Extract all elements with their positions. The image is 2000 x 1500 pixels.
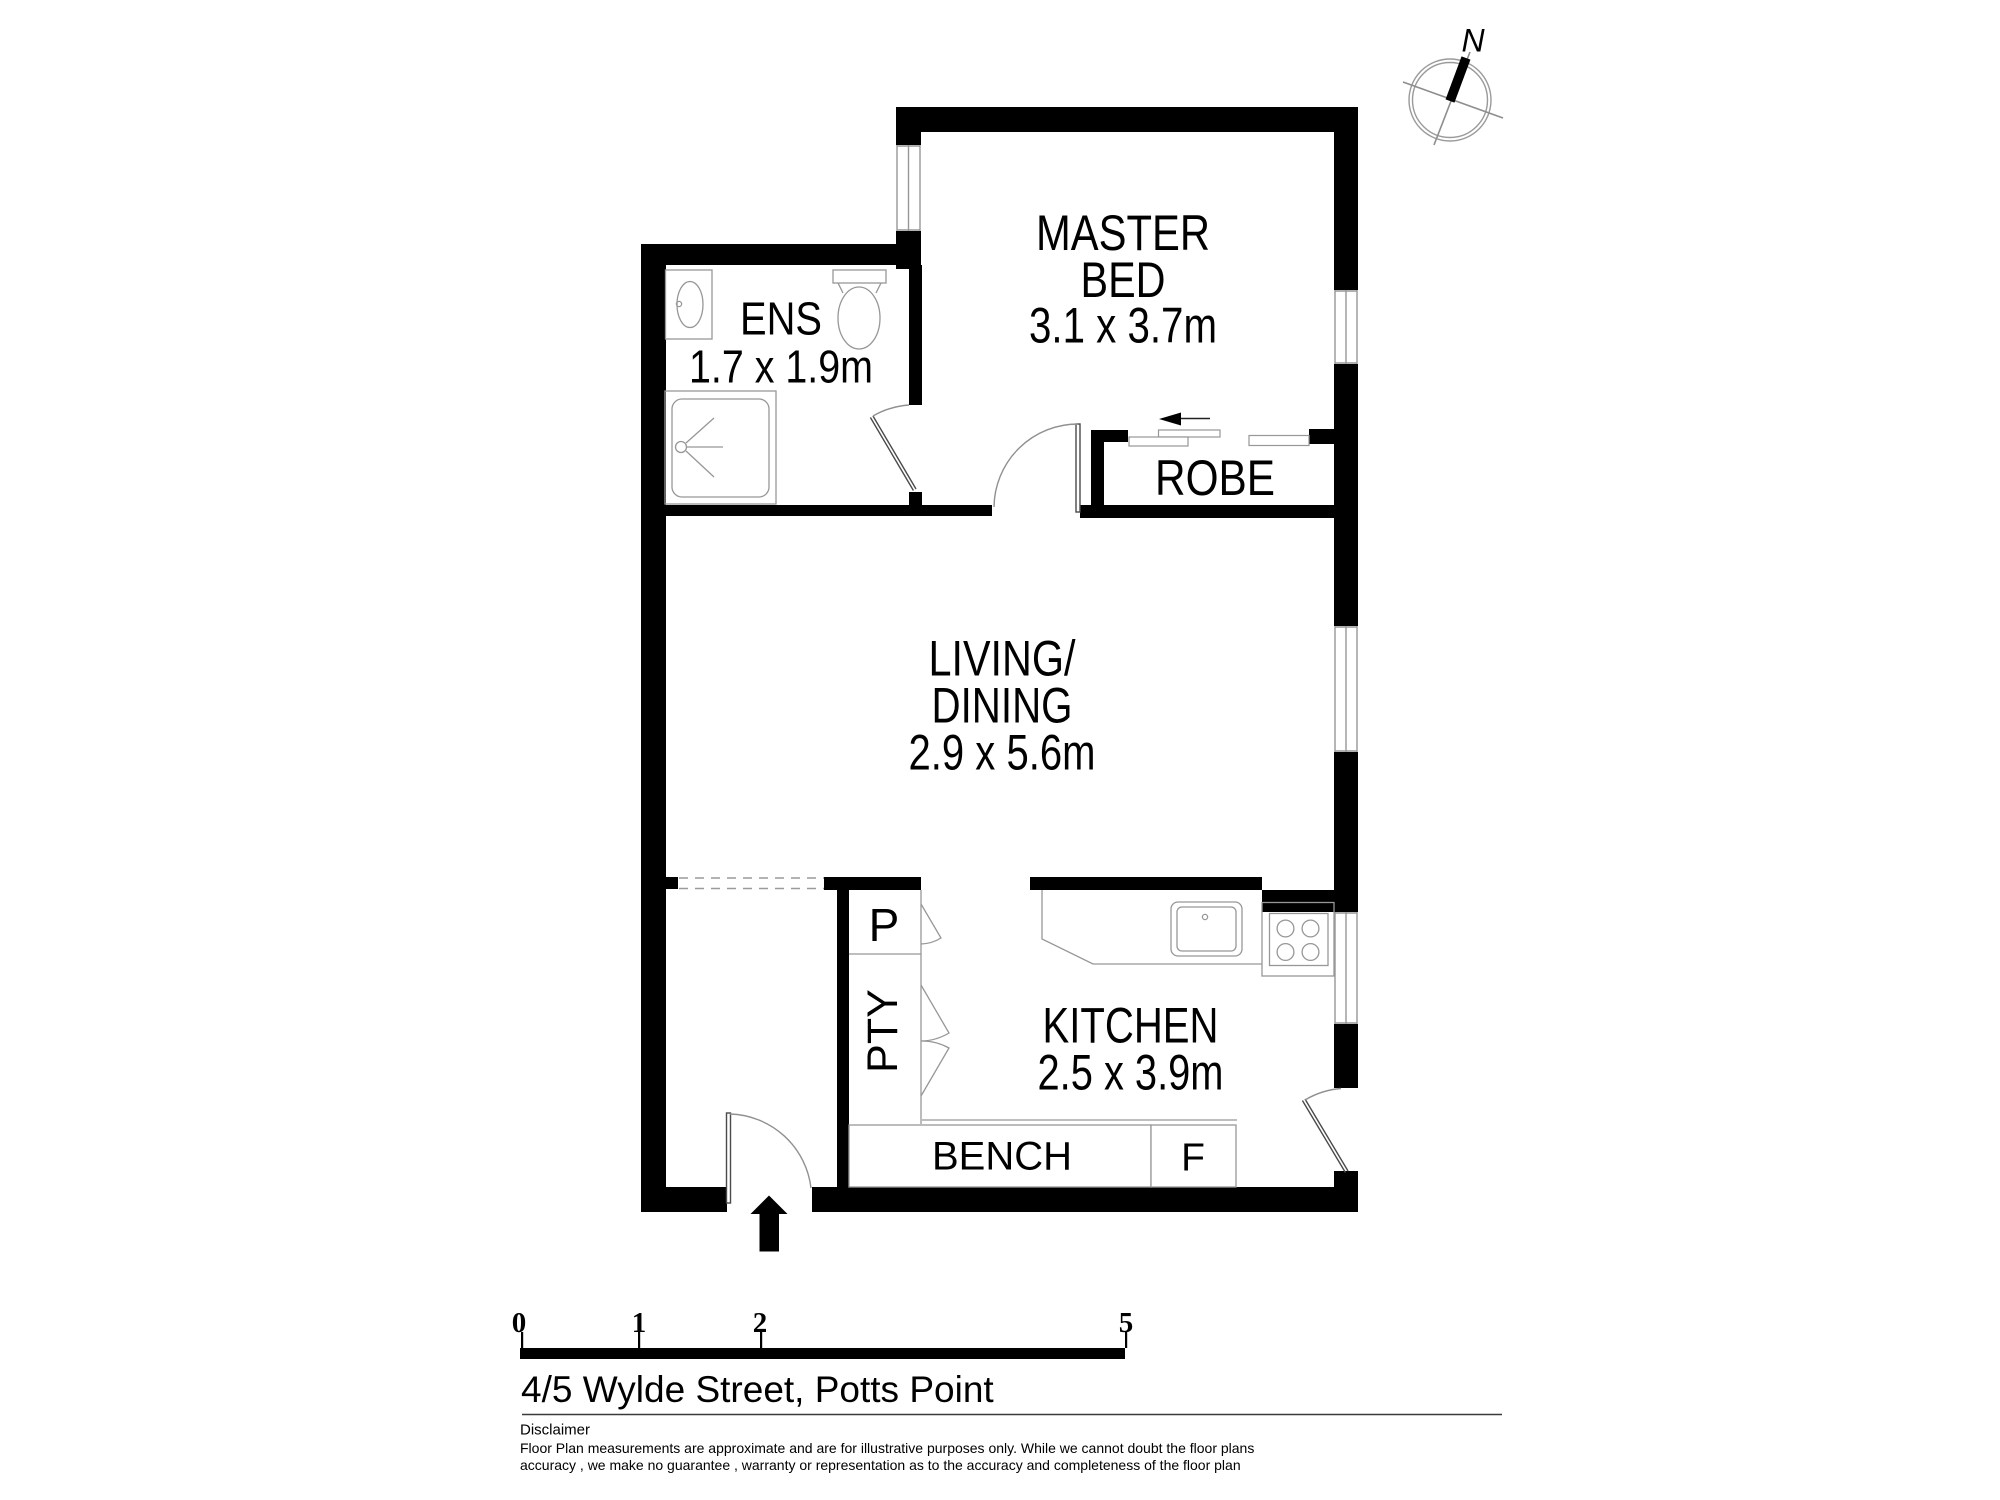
svg-text:0: 0 — [512, 1307, 527, 1339]
svg-text:2: 2 — [753, 1307, 768, 1339]
svg-text:1: 1 — [632, 1307, 647, 1339]
svg-text:P: P — [869, 899, 900, 951]
svg-text:PTY: PTY — [859, 989, 907, 1073]
svg-text:F: F — [1181, 1137, 1205, 1180]
svg-text:Floor Plan measurements are ap: Floor Plan measurements are approximate … — [520, 1440, 1254, 1456]
svg-text:ROBE: ROBE — [1155, 450, 1275, 506]
svg-text:BENCH: BENCH — [932, 1135, 1072, 1179]
svg-text:3.1 x 3.7m: 3.1 x 3.7m — [1029, 298, 1217, 354]
svg-text:5: 5 — [1119, 1307, 1134, 1339]
svg-text:accuracy , we make no guarante: accuracy , we make no guarantee , warran… — [520, 1457, 1241, 1473]
svg-text:2.9 x 5.6m: 2.9 x 5.6m — [909, 725, 1096, 781]
svg-text:N: N — [1461, 23, 1485, 59]
svg-text:Disclaimer: Disclaimer — [520, 1422, 590, 1439]
svg-text:4/5 Wylde Street, Potts Point: 4/5 Wylde Street, Potts Point — [521, 1369, 994, 1410]
svg-text:1.7 x 1.9m: 1.7 x 1.9m — [689, 341, 873, 393]
svg-text:ENS: ENS — [740, 293, 822, 345]
svg-text:2.5 x 3.9m: 2.5 x 3.9m — [1038, 1045, 1224, 1101]
